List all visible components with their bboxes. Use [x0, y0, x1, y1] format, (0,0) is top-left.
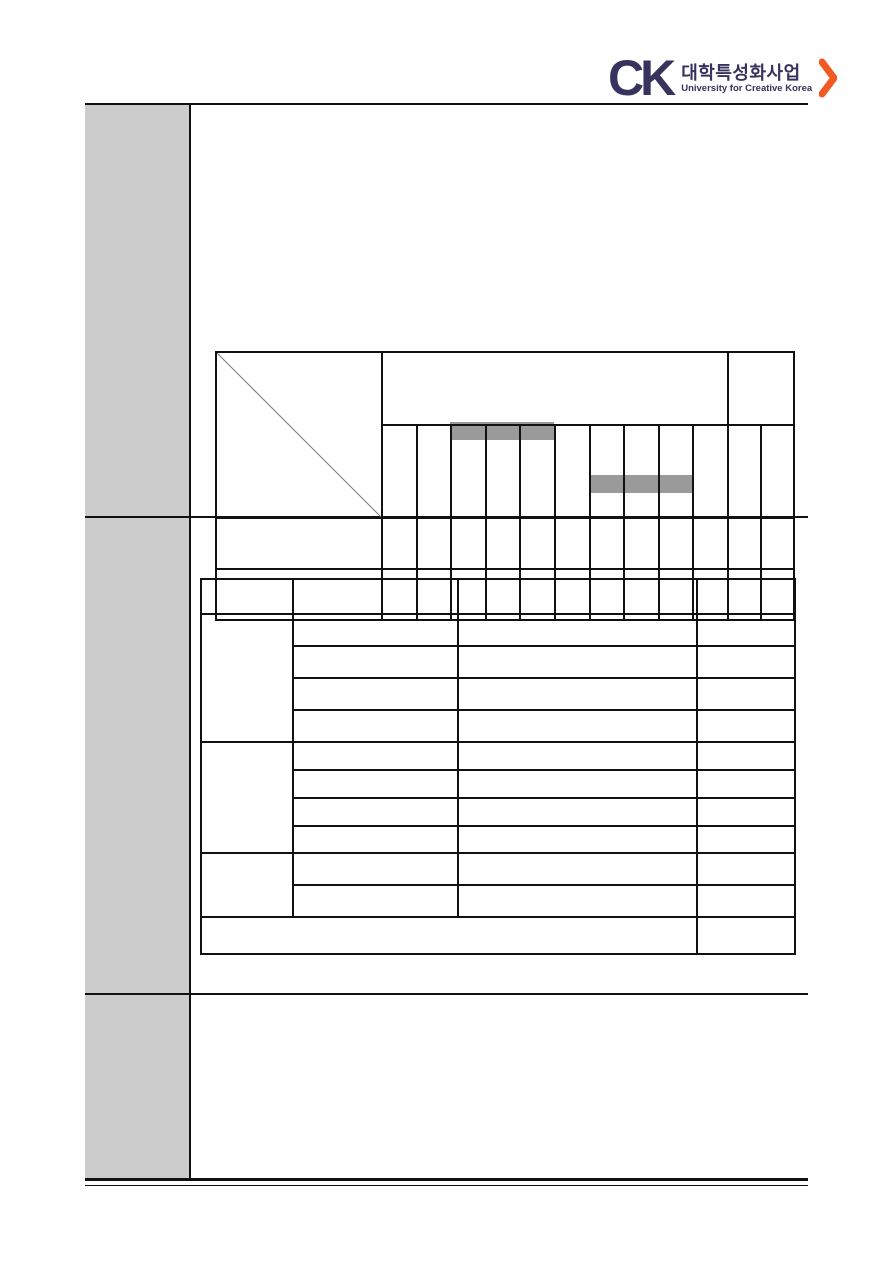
ck-logo-mark: CK	[608, 55, 672, 101]
gantt-cell	[761, 518, 794, 569]
chevron-right-icon	[819, 58, 837, 98]
diagonal-line	[217, 353, 381, 517]
detail-cell	[293, 678, 458, 710]
gantt-cell	[417, 518, 452, 569]
gantt-cell	[520, 518, 555, 569]
gantt-corner-cell	[216, 352, 382, 518]
schedule-gantt-table	[215, 351, 794, 511]
gantt-task-1-label-cell	[216, 518, 382, 569]
detail-group-1-cell	[201, 614, 293, 742]
detail-group-3-cell	[201, 853, 293, 917]
section-divider-2	[85, 993, 808, 995]
detail-cell	[697, 710, 795, 742]
gantt-subheader-cell	[486, 425, 521, 518]
gantt-subheader-cell	[382, 425, 417, 518]
detail-total-value-cell	[697, 917, 795, 954]
detail-cell	[458, 853, 697, 885]
detail-cell	[697, 742, 795, 770]
detail-cell	[458, 646, 697, 678]
gantt-cell	[624, 518, 659, 569]
logo-english-subtitle: University for Creative Korea	[681, 83, 812, 95]
detail-cell	[458, 614, 697, 646]
detail-cell	[458, 770, 697, 798]
gantt-months-header-cell	[382, 352, 728, 425]
gantt-subheader-cell	[659, 425, 694, 518]
gantt-subheader-cell	[624, 425, 659, 518]
detail-cell	[293, 798, 458, 826]
detail-cell	[293, 853, 458, 885]
gantt-subheader-cell	[693, 425, 728, 518]
detail-cell	[293, 826, 458, 853]
page-bottom-rule-thick	[85, 1178, 808, 1181]
detail-cell	[293, 885, 458, 917]
detail-cell	[697, 826, 795, 853]
detail-cell	[293, 646, 458, 678]
gantt-cell	[728, 518, 761, 569]
detail-cell	[697, 885, 795, 917]
sidebar-label-column	[85, 105, 190, 1178]
gantt-subheader-cell	[555, 425, 590, 518]
detail-header-cell-2	[293, 579, 458, 614]
gantt-subheader-cell	[520, 425, 555, 518]
gantt-cell	[590, 518, 625, 569]
page-bottom-rule-thin	[85, 1185, 808, 1186]
detail-cell	[458, 742, 697, 770]
gantt-right-header-cell	[728, 352, 794, 425]
gantt-cell	[659, 518, 694, 569]
detail-total-label-cell	[201, 917, 697, 954]
detail-cell	[458, 710, 697, 742]
detail-cell	[458, 798, 697, 826]
detail-table	[200, 578, 795, 953]
detail-cell	[697, 853, 795, 885]
detail-header-cell-1	[201, 579, 293, 614]
gantt-subheader-cell	[417, 425, 452, 518]
gantt-cell	[555, 518, 590, 569]
gantt-subheader-cell	[728, 425, 761, 518]
detail-cell	[697, 646, 795, 678]
detail-cell	[697, 678, 795, 710]
ck-logo-text: 대학특성화사업 University for Creative Korea	[681, 63, 812, 95]
sidebar-divider-line	[189, 105, 191, 1178]
gantt-subheader-cell	[761, 425, 794, 518]
detail-cell	[293, 770, 458, 798]
document-page: CK 대학특성화사업 University for Creative Korea	[0, 0, 893, 1262]
detail-cell	[293, 710, 458, 742]
gantt-cell	[486, 518, 521, 569]
detail-cell	[697, 614, 795, 646]
ck-logo: CK 대학특성화사업 University for Creative Korea	[608, 53, 837, 103]
gantt-cell	[693, 518, 728, 569]
detail-header-cell-3	[458, 579, 697, 614]
header-rule	[85, 103, 808, 105]
detail-cell	[697, 798, 795, 826]
detail-header-cell-4	[697, 579, 795, 614]
gantt-cell	[382, 518, 417, 569]
detail-cell	[458, 885, 697, 917]
detail-cell	[293, 742, 458, 770]
gantt-cell	[451, 518, 486, 569]
detail-cell	[458, 826, 697, 853]
detail-group-2-cell	[201, 742, 293, 853]
detail-cell	[697, 770, 795, 798]
detail-cell	[458, 678, 697, 710]
gantt-subheader-cell	[590, 425, 625, 518]
logo-korean-title: 대학특성화사업	[681, 63, 812, 83]
detail-cell	[293, 614, 458, 646]
gantt-subheader-cell	[451, 425, 486, 518]
